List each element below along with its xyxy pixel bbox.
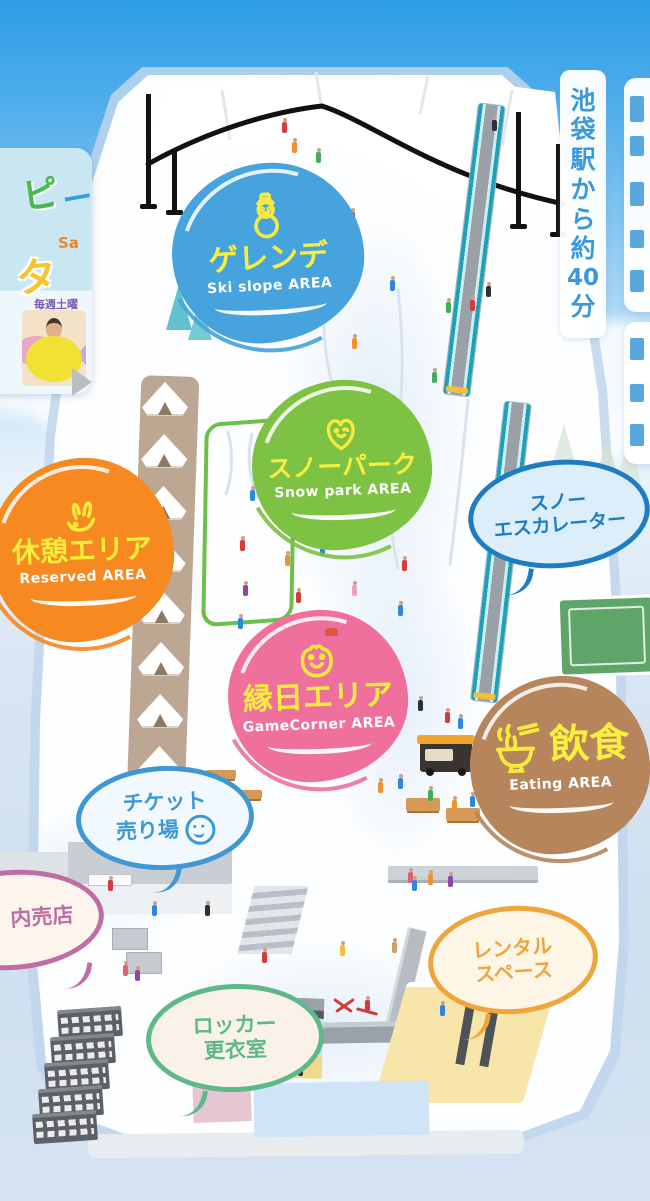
person-figure <box>240 540 245 551</box>
edge-sign-partial <box>624 322 650 464</box>
bubble-line: 内売店 <box>0 903 74 937</box>
person-figure <box>352 338 357 349</box>
person-figure <box>108 880 113 891</box>
banner-text-fragment: ー <box>58 172 92 221</box>
person-figure <box>402 560 407 571</box>
carousel-next-arrow[interactable] <box>72 368 92 396</box>
area-title-en: Reserved AREA <box>19 566 147 586</box>
bubble-line: エスカレーター <box>493 508 627 542</box>
person-figure <box>452 800 457 811</box>
area-circle-gelande: ゲレンデ Ski slope AREA <box>167 158 368 348</box>
gray-block <box>126 952 162 974</box>
person-figure <box>492 120 497 131</box>
person-figure <box>432 372 437 383</box>
person-figure <box>123 965 128 976</box>
tent <box>138 642 184 676</box>
tent <box>141 434 187 468</box>
underline-swoosh <box>215 293 327 318</box>
banner-text-fragment: ピ <box>19 164 62 221</box>
truck-wheel <box>426 768 434 776</box>
sign-char: 池 <box>570 87 595 116</box>
area-title-en: Snow park AREA <box>274 481 412 502</box>
person-figure <box>285 555 290 566</box>
person-figure <box>470 300 475 311</box>
person-figure <box>292 142 297 153</box>
smiley-icon <box>184 814 215 845</box>
heart-face-icon <box>316 409 366 455</box>
person-figure <box>238 618 243 629</box>
person-figure <box>340 945 345 956</box>
person-figure <box>352 585 357 596</box>
person-figure <box>205 905 210 916</box>
area-title-jp: スノーパーク <box>267 451 418 482</box>
bubble-line: 更衣室 <box>204 1037 268 1064</box>
person-figure <box>412 880 417 891</box>
park-map: ゲレンデ Ski slope AREA スノーパーク Snow park ARE… <box>0 0 650 1201</box>
person-figure <box>428 790 433 801</box>
edge-sign-partial <box>624 78 650 312</box>
bubble-line: ロッカー <box>192 1011 277 1039</box>
tent <box>137 694 183 728</box>
picnic-table <box>406 798 440 811</box>
area-title-en: GameCorner AREA <box>242 714 395 735</box>
person-figure <box>135 970 140 981</box>
locker-block <box>32 1110 98 1144</box>
underline-swoosh <box>291 499 396 522</box>
rabbit-icon <box>55 493 106 537</box>
sports-court <box>557 594 650 677</box>
person-figure <box>392 942 397 953</box>
person-figure <box>486 286 491 297</box>
snowman-icon <box>239 190 294 245</box>
bubble-line: 売り場 <box>116 818 180 845</box>
person-figure <box>448 876 453 887</box>
person-figure <box>398 778 403 789</box>
person-figure <box>398 605 403 616</box>
bubble-line: チケット <box>122 789 207 817</box>
sign-char: か <box>570 176 595 205</box>
person-figure <box>458 718 463 729</box>
area-title-jp: 飲食 <box>549 722 630 767</box>
station-access-sign: 池袋駅から約40分 <box>560 70 606 338</box>
area-circle-snow-park: スノーパーク Snow park AREA <box>249 377 435 553</box>
blue-floor <box>254 1080 430 1137</box>
area-title-en: Eating AREA <box>509 774 612 794</box>
person-figure <box>445 712 450 723</box>
sign-char: 40 <box>567 265 599 291</box>
area-circle-ennichi: 縁日エリア GameCorner AREA <box>225 607 411 785</box>
sign-char: 約 <box>570 235 595 264</box>
underline-swoosh <box>267 733 372 756</box>
person-figure <box>365 1000 370 1011</box>
person-figure <box>428 874 433 885</box>
area-title-jp: 休憩エリア <box>12 534 153 568</box>
area-circle-rest: 休憩エリア Reserved AREA <box>0 455 177 645</box>
person-figure <box>418 700 423 711</box>
area-title-jp: 縁日エリア <box>243 680 394 717</box>
bubble-line: スペース <box>474 957 553 986</box>
truck-window <box>425 749 453 761</box>
person-figure <box>243 585 248 596</box>
tent <box>142 382 188 416</box>
sign-char: ら <box>570 206 595 235</box>
sign-char: 袋 <box>570 116 595 145</box>
person-figure <box>378 782 383 793</box>
area-title-en: Ski slope AREA <box>207 274 333 297</box>
person-figure <box>262 952 267 963</box>
ramen-icon <box>488 718 544 776</box>
person-figure <box>282 122 287 133</box>
sign-char: 分 <box>570 293 595 322</box>
person-figure <box>390 280 395 291</box>
frog-icon <box>291 637 343 683</box>
area-title-jp: ゲレンデ <box>208 240 329 278</box>
gray-block <box>112 928 148 950</box>
event-banner[interactable]: ピ ー Sa タテ 毎週土曜 <box>0 148 92 394</box>
sign-char: 駅 <box>570 146 595 175</box>
area-circle-eating: 飲食 Eating AREA <box>467 673 650 857</box>
person-figure <box>152 905 157 916</box>
person-figure <box>440 1005 445 1016</box>
person-figure <box>446 302 451 313</box>
person-figure <box>316 152 321 163</box>
underline-swoosh <box>30 585 137 608</box>
underline-swoosh <box>509 792 614 815</box>
